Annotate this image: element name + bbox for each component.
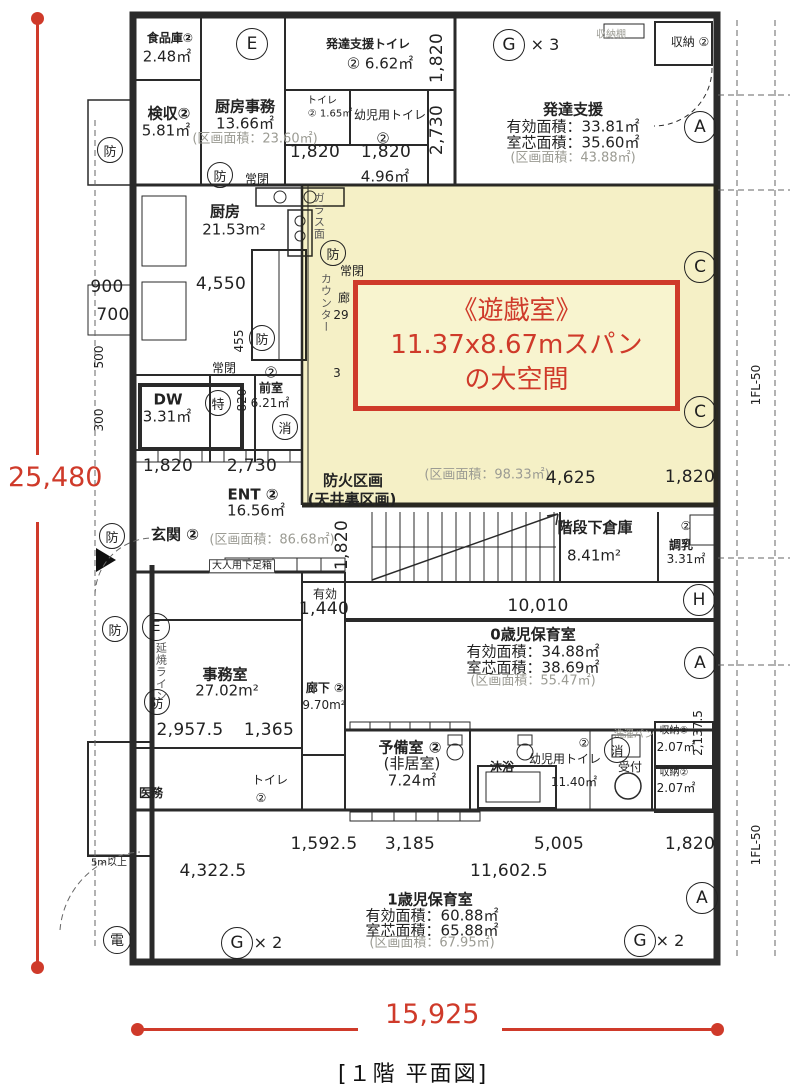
plan-label: 5,005 <box>534 835 584 855</box>
plan-label: 階段下倉庫 <box>557 519 632 536</box>
plan-label: 1FL-50 <box>750 365 764 406</box>
plan-label: × 2 <box>254 934 283 952</box>
plan-label: 常閉 <box>212 362 236 376</box>
grid-marker-G: G <box>221 927 253 959</box>
plan-label: 2,957.5 <box>157 721 224 741</box>
plan-label: 8.41m² <box>567 547 621 564</box>
callout-line-3: の大空間 <box>464 363 568 397</box>
left-dimension-label: 25,480 <box>8 462 102 493</box>
plan-label: DW <box>154 391 183 408</box>
plan-label: 2.48㎡ <box>143 48 191 65</box>
plan-label: 3 <box>333 367 341 381</box>
plan-label: (天井裏区画) <box>308 491 397 508</box>
bottom-dimension-dot-left <box>131 1023 144 1036</box>
grid-marker-防: 防 <box>249 325 275 351</box>
plan-label: 700 <box>96 306 129 326</box>
bottom-dimension-label: 15,925 <box>385 999 479 1030</box>
grid-marker-A: A <box>686 882 718 914</box>
plan-label: 1,440 <box>299 600 349 620</box>
plan-label: 厨房事務 <box>215 98 275 115</box>
plan-label: 1,820 <box>333 520 353 570</box>
plan-label: 2,730 <box>227 457 277 477</box>
left-dimension-line-bottom <box>36 522 39 968</box>
grid-marker-防: 防 <box>102 616 128 642</box>
plan-label: ② 1.65㎡ <box>308 108 352 120</box>
grid-marker-電: 電 <box>103 926 131 954</box>
plan-label: 幼児用トイレ <box>529 753 601 767</box>
plan-caption: [１階 平面図] <box>338 1056 488 1088</box>
plan-label: 2,137.5 <box>692 710 706 756</box>
grid-marker-特: 特 <box>205 390 231 416</box>
plan-label: 室芯面積：35.60㎡ <box>507 134 640 151</box>
plan-label: 4,550 <box>196 275 246 295</box>
plan-label: ガラス面 <box>312 192 325 240</box>
plan-label: カウンター <box>319 273 332 333</box>
plan-label: 2.07㎡ <box>657 782 696 796</box>
plan-label: 1FL-50 <box>750 825 764 866</box>
plan-label: 前室 <box>259 382 283 396</box>
grid-marker-H: H <box>683 584 715 616</box>
bottom-dimension-line-left <box>136 1028 358 1031</box>
grid-marker-E: E <box>142 613 170 641</box>
plan-label: 16.56㎡ <box>227 502 285 519</box>
plan-label: 大人用下足箱 <box>209 559 275 573</box>
plan-label: 医務 <box>139 787 163 801</box>
left-dimension-dot-bottom <box>31 961 44 974</box>
plan-label: (区画面積：67.95㎡) <box>369 937 494 952</box>
plan-label: 4,322.5 <box>180 862 247 882</box>
plan-label: 820 <box>236 389 250 412</box>
plan-label: 検収② <box>148 105 191 122</box>
plan-label: トイレ <box>252 774 288 788</box>
plan-label: × 3 <box>531 36 560 54</box>
plan-label: 発達支援トイレ <box>326 38 410 52</box>
plan-label: 5.81㎡ <box>142 122 190 139</box>
plan-label: ② <box>681 520 692 534</box>
plan-label: 11.40㎡ <box>551 776 597 790</box>
plan-label: 4.96㎡ <box>361 168 409 185</box>
plan-label: (区画面積：55.47㎡) <box>470 675 595 690</box>
plan-label: 1,592.5 <box>291 835 358 855</box>
plan-label: 2,730 <box>428 105 448 155</box>
plan-label: 900 <box>90 278 123 298</box>
plan-label: (区画面積：86.68㎡) <box>209 534 334 549</box>
plan-label: 受付 <box>618 761 642 775</box>
plan-label: 5m以上 <box>91 857 127 869</box>
plan-label: (区画面積：43.88㎡) <box>510 152 635 167</box>
plan-label: 9.70m² <box>302 699 345 713</box>
plan-label: ② <box>264 364 277 381</box>
plan-label: 厨房 <box>210 203 240 220</box>
callout-line-2: 11.37x8.67mスパン <box>390 328 642 362</box>
grid-marker-防: 防 <box>320 240 346 266</box>
playroom-callout: 《遊戯室》 11.37x8.67mスパン の大空間 <box>353 280 680 411</box>
plan-label: 455 <box>233 330 247 353</box>
plan-label: 300 <box>93 409 107 432</box>
grid-marker-消: 消 <box>604 737 630 763</box>
plan-label: 1,820 <box>290 143 340 163</box>
plan-label: 3.31㎡ <box>667 553 706 567</box>
plan-label: 0歳児保育室 <box>490 626 575 643</box>
callout-line-1: 《遊戯室》 <box>451 294 581 328</box>
grid-marker-A: A <box>684 111 716 143</box>
plan-label: 廊 <box>338 292 350 306</box>
plan-label: 食品庫② <box>147 32 193 46</box>
plan-label: 3,185 <box>385 835 435 855</box>
grid-marker-A: A <box>684 647 716 679</box>
plan-label: 3.31㎡ <box>143 408 191 425</box>
floor-plan: 《遊戯室》 11.37x8.67mスパン の大空間 25,480 15,925 … <box>0 0 810 1088</box>
plan-label: 防火区画 <box>323 472 383 489</box>
plan-label: 沐浴 <box>490 761 514 775</box>
grid-marker-E: E <box>236 28 268 60</box>
plan-label: トイレ <box>307 95 337 107</box>
plan-label: 1,365 <box>244 721 294 741</box>
grid-marker-C: C <box>684 396 716 428</box>
grid-marker-防: 防 <box>97 137 123 163</box>
left-dimension-line-top <box>36 18 39 455</box>
plan-label: 収納② <box>660 767 689 779</box>
grid-marker-G: G <box>624 925 656 957</box>
plan-label: 2.07㎡ <box>657 741 696 755</box>
plan-label: 1,820 <box>665 835 715 855</box>
plan-label: 常閉 <box>245 173 269 187</box>
plan-label: 発達支援 <box>543 101 603 118</box>
plan-label: 500 <box>93 346 107 369</box>
plan-label: 29 <box>333 309 348 323</box>
plan-label: 6.21㎡ <box>251 397 290 411</box>
plan-label: 玄関 ② <box>151 526 199 543</box>
grid-marker-C: C <box>684 251 716 283</box>
bottom-dimension-line-right <box>502 1028 718 1031</box>
plan-label: ② 6.62㎡ <box>347 55 414 72</box>
plan-label: 調乳 <box>669 539 693 553</box>
plan-label: 10,010 <box>507 597 568 617</box>
plan-label: × 2 <box>656 932 685 950</box>
plan-label: ② <box>256 792 267 806</box>
plan-label: 21.53m² <box>202 221 266 238</box>
plan-label: 幼児用トイレ <box>354 109 426 123</box>
grid-marker-防: 防 <box>207 162 233 188</box>
plan-label: 11,602.5 <box>470 862 548 882</box>
plan-label: 1,820 <box>665 468 715 488</box>
plan-label: (区画面積：98.33㎡) <box>424 469 549 484</box>
grid-marker-防: 防 <box>144 689 170 715</box>
plan-label: 7.24㎡ <box>388 772 436 789</box>
plan-label: 1,820 <box>143 457 193 477</box>
plan-label: 4,625 <box>546 469 596 489</box>
plan-label: 収納棚 <box>596 29 626 41</box>
plan-label: ② <box>579 737 590 751</box>
plan-label: 1,820 <box>361 143 411 163</box>
grid-marker-防: 防 <box>99 523 125 549</box>
plan-label: 1,820 <box>428 33 448 83</box>
plan-label: 収納 ② <box>671 36 710 50</box>
grid-marker-G: G <box>493 29 525 61</box>
plan-label: 27.02m² <box>195 682 259 699</box>
plan-label: 廊下 ② <box>306 682 344 696</box>
grid-marker-消: 消 <box>272 414 298 440</box>
plan-label: 13.66㎡ <box>216 115 274 132</box>
plan-label: 収納② <box>660 725 689 737</box>
left-dimension-dot-top <box>31 12 44 25</box>
plan-label: 常閉 <box>340 265 364 279</box>
plan-label: (非居室) <box>384 755 441 772</box>
bottom-dimension-dot-right <box>711 1023 724 1036</box>
